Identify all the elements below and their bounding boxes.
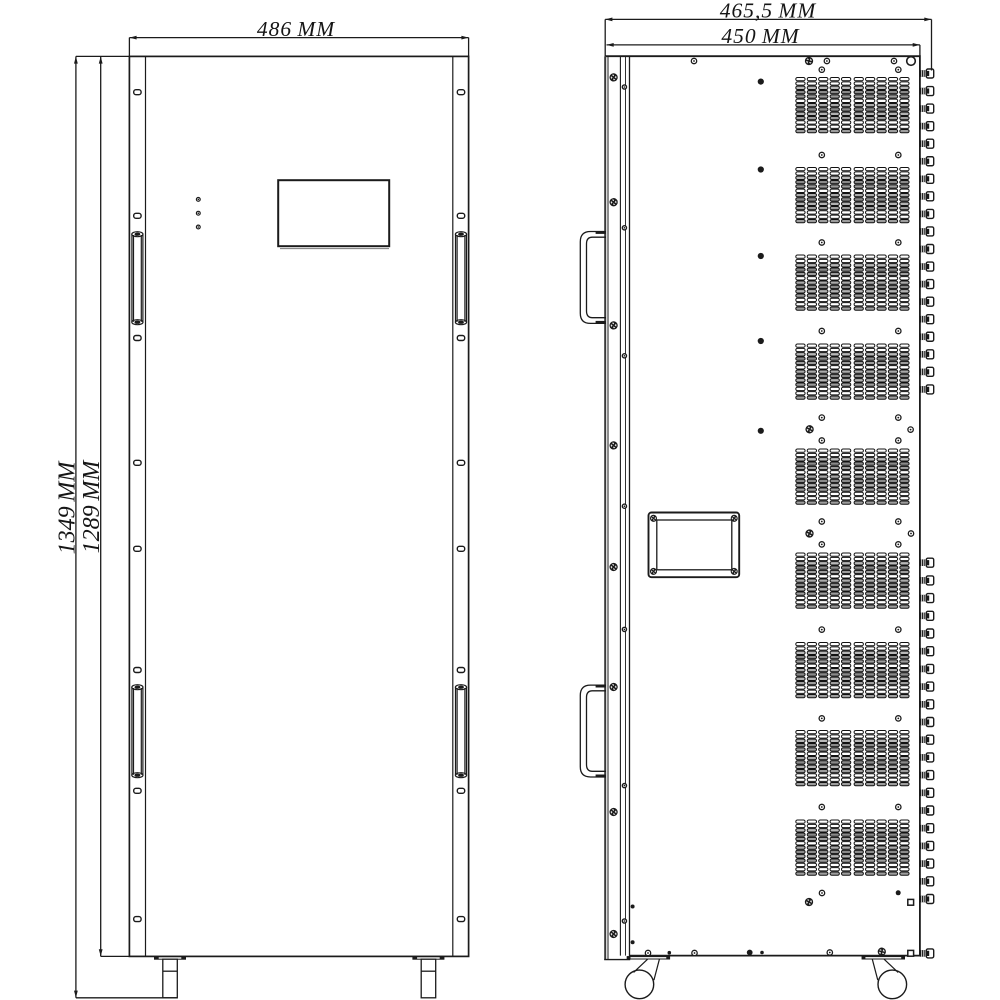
svg-text:450 MM: 450 MM [721,24,799,48]
svg-text:1289 MM: 1289 MM [79,459,105,554]
svg-text:486 MM: 486 MM [257,17,335,41]
svg-text:465,5 MM: 465,5 MM [720,0,817,22]
svg-text:1349 MM: 1349 MM [54,460,80,555]
